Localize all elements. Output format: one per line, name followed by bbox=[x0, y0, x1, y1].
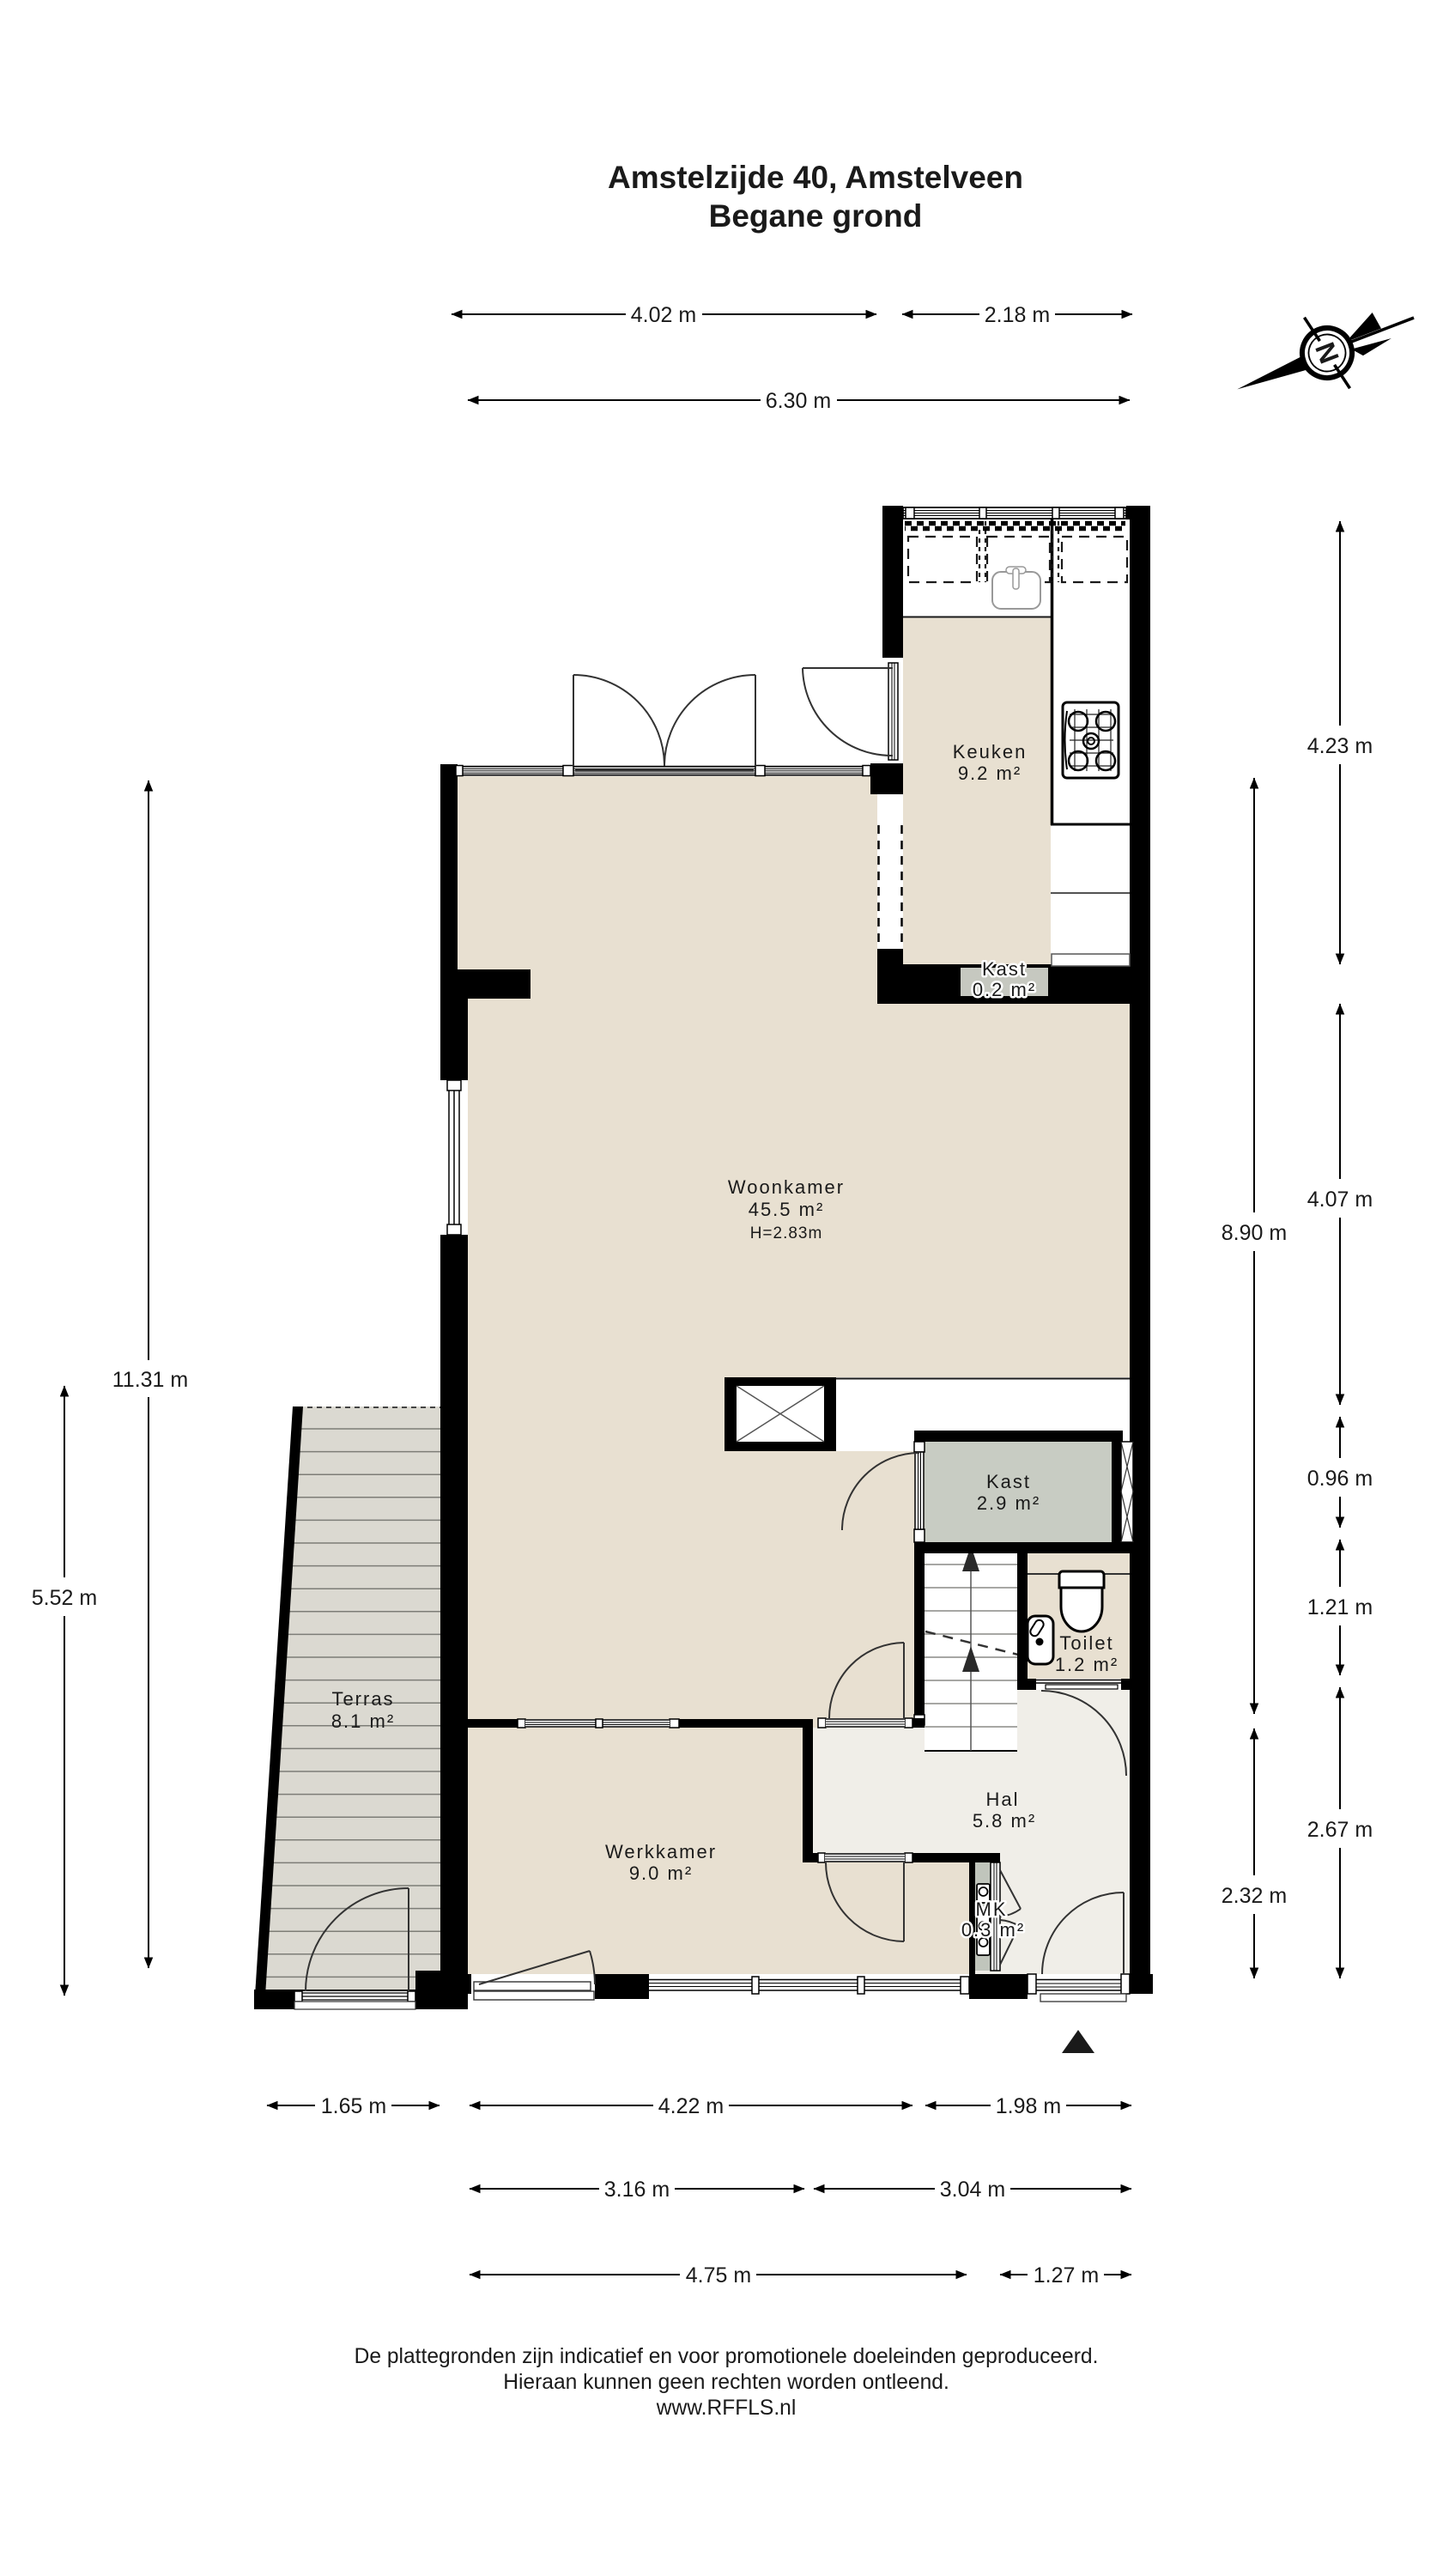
svg-text:4.75 m: 4.75 m bbox=[686, 2263, 751, 2287]
svg-text:De plattegronden zijn indicati: De plattegronden zijn indicatief en voor… bbox=[355, 2345, 1099, 2368]
svg-text:9.0 m²: 9.0 m² bbox=[629, 1862, 693, 1884]
svg-text:Woonkamer: Woonkamer bbox=[728, 1176, 845, 1198]
svg-text:11.31 m: 11.31 m bbox=[112, 1368, 188, 1392]
svg-text:9.2 m²: 9.2 m² bbox=[958, 762, 1022, 784]
svg-text:Begane grond: Begane grond bbox=[709, 198, 923, 234]
svg-text:8.1 m²: 8.1 m² bbox=[331, 1710, 395, 1732]
svg-text:Werkkamer: Werkkamer bbox=[605, 1841, 717, 1862]
svg-text:2.9 m²: 2.9 m² bbox=[977, 1492, 1040, 1514]
svg-text:Amstelzijde 40, Amstelveen: Amstelzijde 40, Amstelveen bbox=[608, 160, 1023, 195]
svg-text:5.52 m: 5.52 m bbox=[32, 1586, 97, 1610]
svg-text:2.18 m: 2.18 m bbox=[985, 303, 1050, 327]
svg-text:Keuken: Keuken bbox=[953, 741, 1028, 762]
svg-text:Terras: Terras bbox=[331, 1688, 394, 1710]
svg-text:0.96 m: 0.96 m bbox=[1307, 1467, 1373, 1491]
svg-text:Hal: Hal bbox=[985, 1789, 1019, 1810]
svg-text:1.2 m²: 1.2 m² bbox=[1055, 1654, 1119, 1675]
svg-text:8.90 m: 8.90 m bbox=[1222, 1221, 1287, 1245]
svg-text:MK: MK bbox=[976, 1899, 1008, 1920]
svg-text:Kast: Kast bbox=[986, 1471, 1031, 1492]
svg-text:1.21 m: 1.21 m bbox=[1307, 1595, 1373, 1619]
svg-text:3.16 m: 3.16 m bbox=[604, 2178, 670, 2202]
svg-text:4.23 m: 4.23 m bbox=[1307, 734, 1373, 758]
svg-text:1.65 m: 1.65 m bbox=[321, 2094, 386, 2118]
svg-text:5.8 m²: 5.8 m² bbox=[973, 1810, 1036, 1832]
svg-text:0.2 m²: 0.2 m² bbox=[973, 979, 1036, 1000]
svg-text:2.67 m: 2.67 m bbox=[1307, 1818, 1373, 1842]
svg-text:0.3 m²: 0.3 m² bbox=[961, 1919, 1025, 1941]
svg-text:6.30 m: 6.30 m bbox=[766, 389, 831, 413]
svg-text:1.27 m: 1.27 m bbox=[1034, 2263, 1099, 2287]
svg-text:Kast: Kast bbox=[982, 958, 1027, 980]
svg-text:4.02 m: 4.02 m bbox=[631, 303, 696, 327]
svg-text:3.04 m: 3.04 m bbox=[940, 2178, 1005, 2202]
svg-text:2.32 m: 2.32 m bbox=[1222, 1884, 1287, 1908]
svg-text:www.RFFLS.nl: www.RFFLS.nl bbox=[656, 2397, 797, 2420]
svg-text:4.07 m: 4.07 m bbox=[1307, 1188, 1373, 1212]
svg-text:H=2.83m: H=2.83m bbox=[750, 1224, 823, 1242]
svg-text:Hieraan kunnen geen rechten wo: Hieraan kunnen geen rechten worden ontle… bbox=[503, 2371, 949, 2394]
svg-text:Toilet: Toilet bbox=[1059, 1632, 1113, 1654]
svg-text:1.98 m: 1.98 m bbox=[996, 2094, 1061, 2118]
svg-text:4.22 m: 4.22 m bbox=[658, 2094, 724, 2118]
svg-text:45.5 m²: 45.5 m² bbox=[749, 1199, 825, 1220]
